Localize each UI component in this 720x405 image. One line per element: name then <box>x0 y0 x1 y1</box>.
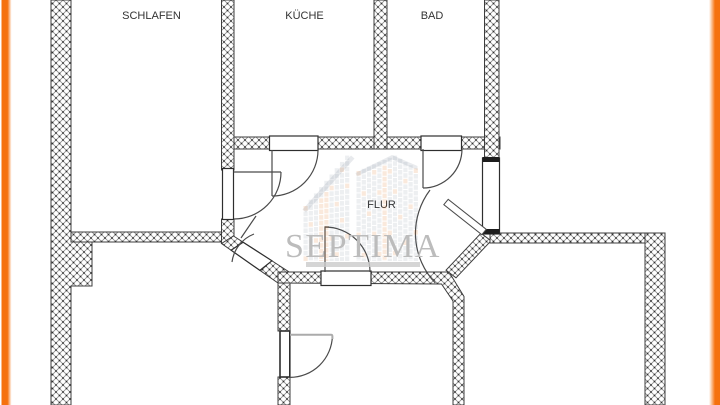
svg-text:SEPTIMA: SEPTIMA <box>285 228 441 265</box>
svg-text:SCHLAFEN: SCHLAFEN <box>122 10 181 22</box>
svg-text:BAD: BAD <box>421 10 444 22</box>
svg-text:KÜCHE: KÜCHE <box>285 10 324 22</box>
